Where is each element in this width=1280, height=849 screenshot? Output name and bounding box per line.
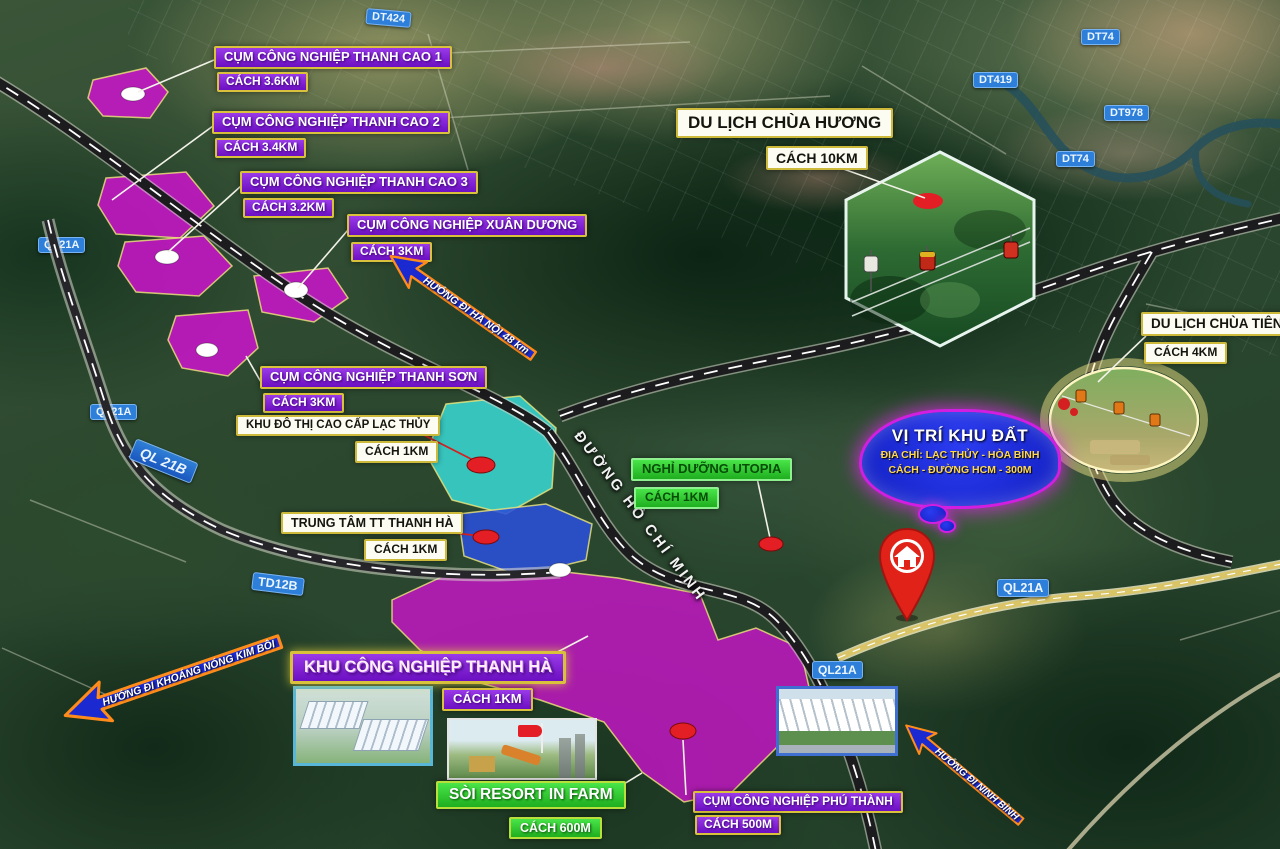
label-soi-resort-in-farm: SÒI RESORT IN FARM <box>436 781 626 809</box>
bubble-puff <box>920 506 946 522</box>
property-callout-bubble: VỊ TRÍ KHU ĐẤT ĐỊA CHỈ: LẠC THỦY - HÒA B… <box>862 412 1058 506</box>
bubble-puff <box>940 521 954 531</box>
thanh-ha-industrial-render <box>293 686 433 766</box>
label-nghi-duong-utopia: NGHỈ DƯỠNG UTOPIA <box>631 458 792 481</box>
dist-thanh-cao-3: CÁCH 3.2KM <box>243 198 334 218</box>
road-shield-dt419: DT419 <box>973 72 1018 88</box>
label-cum-cn-thanh-cao-3: CỤM CÔNG NGHIỆP THANH CAO 3 <box>240 171 478 194</box>
lantern-icon <box>1058 398 1070 410</box>
dist-thanh-son: CÁCH 3KM <box>263 393 344 413</box>
road-shield-dt978: DT978 <box>1104 105 1149 121</box>
dist-chua-tien: CÁCH 4KM <box>1144 342 1227 364</box>
road-shield-dt74-top: DT74 <box>1081 29 1120 45</box>
property-distance: CÁCH - ĐƯỜNG HCM - 300M <box>862 464 1058 476</box>
label-cum-cn-thanh-son: CỤM CÔNG NGHIỆP THANH SƠN <box>260 366 487 389</box>
soi-resort-render <box>447 718 597 780</box>
label-khu-do-thi-lac-thuy: KHU ĐÔ THỊ CAO CẤP LẠC THỦY <box>236 415 440 436</box>
road-shield-ql21a-mid: QL21A <box>812 661 863 679</box>
dist-phu-thanh: CÁCH 500M <box>695 815 781 835</box>
label-cum-cn-phu-thanh: CỤM CÔNG NGHIỆP PHÚ THÀNH <box>693 791 903 813</box>
label-kcn-thanh-ha: KHU CÔNG NGHIỆP THANH HÀ <box>290 651 566 684</box>
property-address: ĐỊA CHỈ: LẠC THỦY - HÒA BÌNH <box>862 449 1058 461</box>
road-shield-ql21a-right: QL21A <box>997 579 1049 597</box>
chua-huong-inset <box>846 152 1034 346</box>
property-title: VỊ TRÍ KHU ĐẤT <box>862 426 1058 446</box>
label-cum-cn-thanh-cao-1: CỤM CÔNG NGHIỆP THANH CAO 1 <box>214 46 452 69</box>
property-pin-icon <box>874 526 940 622</box>
label-du-lich-chua-tien: DU LỊCH CHÙA TIÊN <box>1141 312 1280 336</box>
dist-chua-huong: CÁCH 10KM <box>766 146 868 170</box>
dist-lac-thuy: CÁCH 1KM <box>355 441 438 463</box>
dist-kcn-thanh-ha: CÁCH 1KM <box>442 688 533 711</box>
river <box>1002 82 1280 204</box>
label-trung-tam-thanh-ha: TRUNG TÂM TT THANH HÀ <box>281 512 463 534</box>
label-du-lich-chua-huong: DU LỊCH CHÙA HƯƠNG <box>676 108 893 138</box>
dist-soi-resort: CÁCH 600M <box>509 817 602 839</box>
dist-trung-tam-thanh-ha: CÁCH 1KM <box>364 539 447 561</box>
label-cum-cn-thanh-cao-2: CỤM CÔNG NGHIỆP THANH CAO 2 <box>212 111 450 134</box>
red-flag-icon <box>518 725 542 737</box>
chua-tien-inset <box>1044 362 1204 478</box>
dist-thanh-cao-2: CÁCH 3.4KM <box>215 138 306 158</box>
road-shield-dt74-mid: DT74 <box>1056 151 1095 167</box>
dist-utopia: CÁCH 1KM <box>634 487 719 509</box>
phu-thanh-industrial-render <box>776 686 898 756</box>
promo-map: ĐƯỜNG HỒ CHÍ MINH CỤM CÔNG NGHIỆP THANH … <box>0 0 1280 849</box>
label-cum-cn-xuan-duong: CỤM CÔNG NGHIỆP XUÂN DƯƠNG <box>347 214 587 237</box>
dist-thanh-cao-1: CÁCH 3.6KM <box>217 72 308 92</box>
map-overlay-graphics <box>0 0 1280 849</box>
